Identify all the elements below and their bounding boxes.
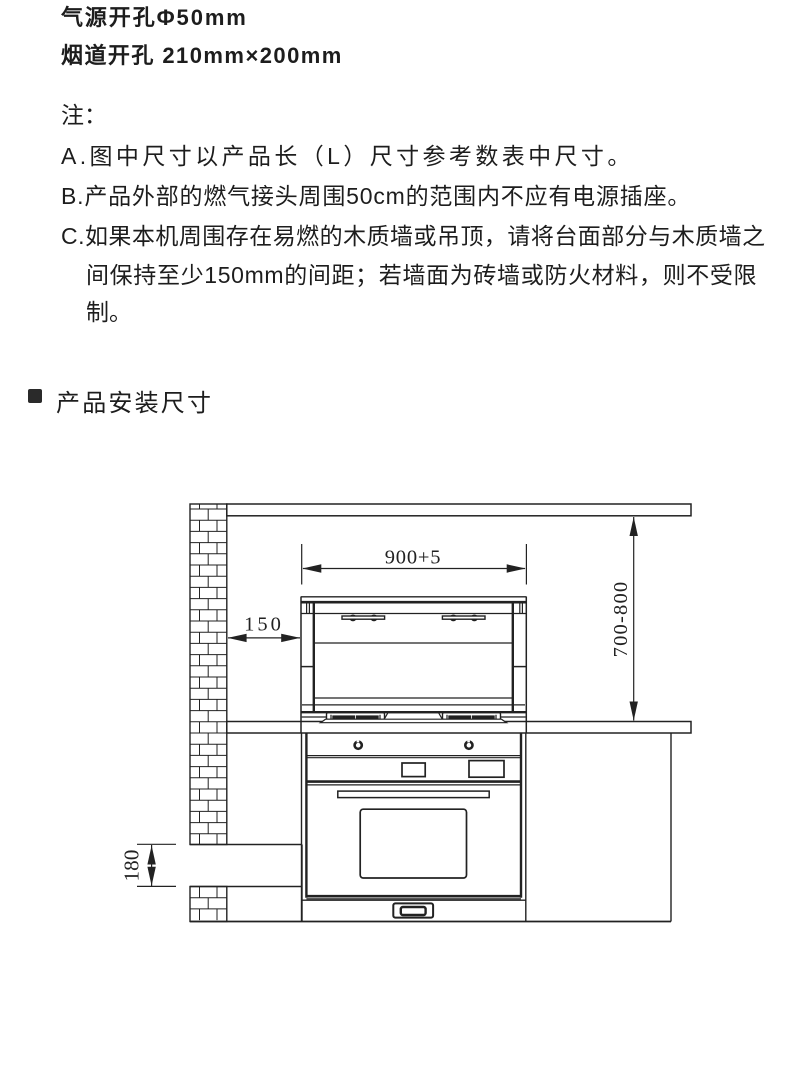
svg-text:700-800: 700-800 [610, 581, 632, 658]
svg-text:900+5: 900+5 [385, 547, 442, 569]
svg-text:180: 180 [120, 849, 144, 881]
svg-text:150: 150 [244, 614, 284, 636]
